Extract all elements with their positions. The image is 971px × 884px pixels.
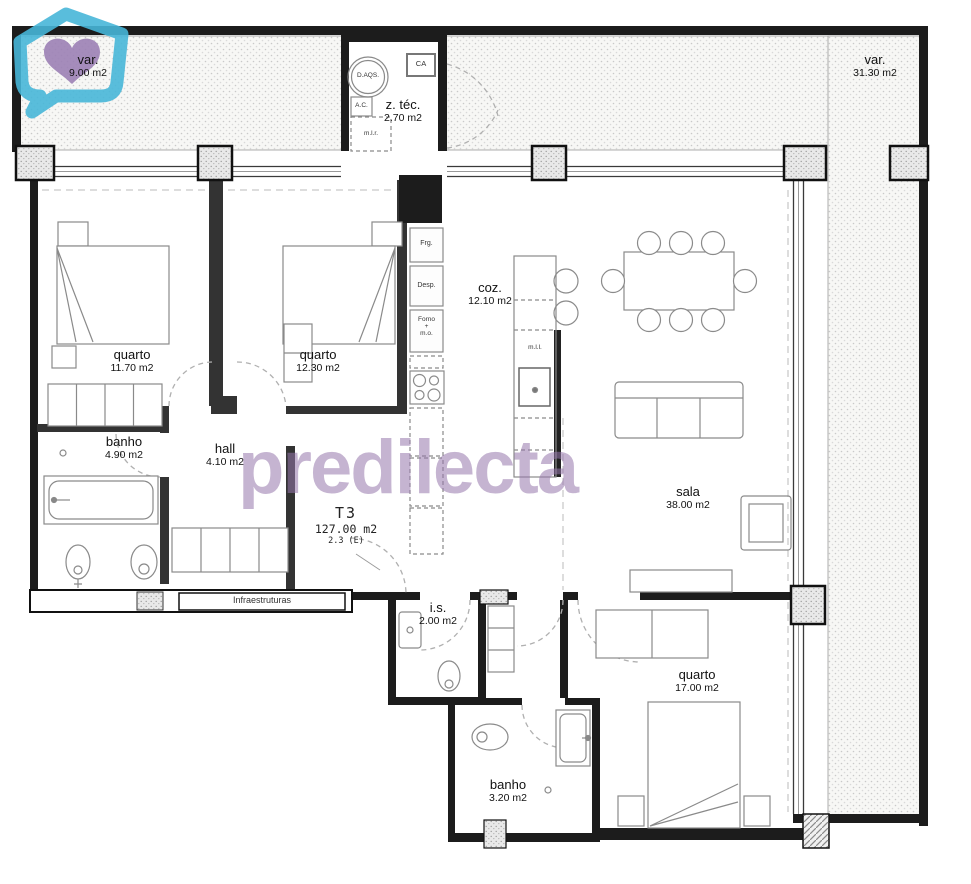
room-label-is: i.s. 2.00 m2 [407, 600, 469, 628]
room-label-quarto-1: quarto 11.70 m2 [90, 347, 174, 375]
toilet [438, 661, 460, 691]
chair [702, 232, 725, 255]
note-arrow [356, 554, 380, 570]
unit-type: T3 [298, 504, 394, 522]
door-hall-corridor [350, 538, 406, 594]
nightstand [618, 796, 644, 826]
room-label-var-right: var. 31.30 m2 [833, 52, 917, 80]
chair [734, 270, 757, 293]
nightstand [52, 346, 76, 368]
label-ac: A.C. [352, 102, 371, 109]
corridor-closet [488, 606, 514, 672]
chair [602, 270, 625, 293]
unit-note: 2.3 (E) [298, 536, 394, 546]
nightstand [744, 796, 770, 826]
room-label-banho-1: banho 4.90 m2 [80, 434, 168, 462]
chair [670, 232, 693, 255]
door-corridor [517, 600, 563, 646]
room-label-hall: hall 4.10 m2 [183, 441, 267, 469]
watermark-brand: predilecta [238, 424, 577, 511]
label-desp: Desp. [411, 282, 442, 290]
hall-closet [172, 528, 288, 572]
room-label-var-left: var. 9.00 m2 [48, 52, 128, 80]
label-ca: CA [411, 60, 431, 68]
sofa [615, 382, 743, 438]
label-daqs: D.AQS. [349, 72, 387, 79]
label-infraestruturas: Infraestruturas [179, 596, 345, 606]
unit-summary: T3 127.00 m2 2.3 (E) [298, 504, 394, 546]
room-label-sala: sala 38.00 m2 [646, 484, 730, 512]
label-mlr: m.l.r. [350, 130, 392, 137]
floor-drain [60, 450, 66, 456]
label-frg: Frg. [411, 240, 442, 248]
label-mll: m.l.l. [517, 344, 553, 351]
chair [638, 309, 661, 332]
banho-1-fixtures [44, 450, 158, 588]
room-label-ztec: z. téc. 2.70 m2 [363, 97, 443, 125]
stool [554, 269, 578, 293]
unit-total-area: 127.00 m2 [298, 522, 394, 536]
chair [670, 309, 693, 332]
chair [638, 232, 661, 255]
chair [702, 309, 725, 332]
quarto-3-furniture [596, 610, 770, 828]
stool [554, 301, 578, 325]
label-forno: Forno + m.o. [411, 316, 442, 337]
door-quarto-1 [169, 362, 213, 406]
floor-plan: predilecta var. 9.00 m2 var. 31.30 m2 z.… [0, 0, 971, 884]
tv-bench [630, 570, 732, 592]
window-right [794, 180, 804, 814]
dining-table [624, 252, 734, 310]
quarto-1-furniture [48, 222, 169, 426]
nightstand [372, 222, 402, 246]
nightstand [58, 222, 88, 246]
room-label-quarto-3: quarto 17.00 m2 [652, 667, 742, 695]
bed [648, 702, 740, 828]
room-label-coz: coz. 12.10 m2 [448, 280, 532, 308]
room-label-banho-2: banho 3.20 m2 [462, 777, 554, 805]
sala-furniture [602, 232, 792, 593]
room-label-quarto-2: quarto 12.30 m2 [276, 347, 360, 375]
